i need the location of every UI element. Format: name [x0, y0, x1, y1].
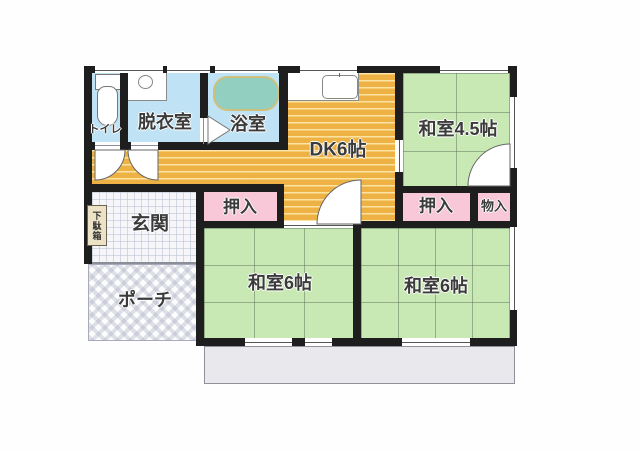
room-label-toilet: トイレ — [89, 125, 122, 136]
room-label-washitsu-4-5: 和室4.5帖 — [418, 120, 497, 138]
room-label-genkan: 玄関 — [131, 215, 169, 234]
door-arc — [95, 150, 125, 180]
room-label-dk: DK6帖 — [309, 141, 366, 160]
bath-door-icon — [208, 116, 230, 144]
room-label-oshiire-left: 押入 — [223, 199, 257, 216]
room-label-porch: ポーチ — [118, 291, 172, 309]
door-arc — [317, 180, 361, 224]
shoe-cabinet-label: 下駄箱 — [91, 211, 104, 241]
room-label-monoire: 物入 — [481, 200, 507, 213]
room-label-washitsu-6-right: 和室6帖 — [404, 277, 468, 295]
door-arc — [468, 144, 510, 186]
room-label-bath: 浴室 — [230, 115, 266, 133]
room-label-dressing: 脱衣室 — [138, 113, 192, 131]
room-label-oshiire-right: 押入 — [419, 198, 453, 215]
door-arc — [128, 150, 158, 180]
room-label-washitsu-6-left: 和室6帖 — [248, 274, 312, 292]
shoe-cabinet: 下駄箱 — [87, 205, 107, 246]
floorplan-canvas: 下駄箱 トイレ 脱衣室 浴室 DK6帖 和室4.5帖 押入 押入 物入 玄関 ポ… — [0, 0, 640, 452]
